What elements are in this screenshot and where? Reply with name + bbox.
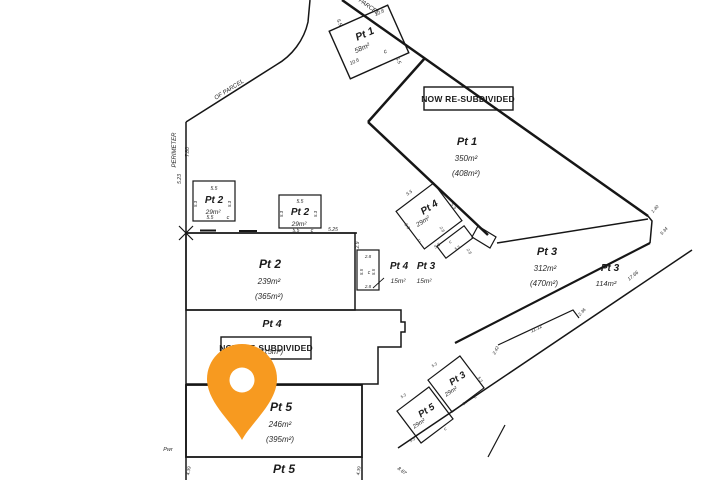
parcel-pt1-58-label: Pt 1 bbox=[354, 25, 377, 44]
parcel-pt3-312-area: 312m² bbox=[534, 264, 557, 273]
dim-7-80: 7.80 bbox=[185, 147, 191, 157]
parcel-pt5-bottom-label: Pt 5 bbox=[273, 462, 295, 476]
dim-4-39: 4.39 bbox=[185, 466, 192, 476]
dim-1-40: 1.40 bbox=[650, 204, 660, 214]
dim-17-66: 17.66 bbox=[627, 270, 641, 283]
dim-5-3: 5.3 bbox=[193, 200, 198, 207]
corner-jog-outline bbox=[472, 226, 496, 248]
parcel-pt2-29a-label: Pt 2 bbox=[205, 195, 224, 206]
dim-2-8: 2.8 bbox=[364, 254, 372, 259]
dim-5-5: 5.5 bbox=[394, 56, 402, 65]
pt1-58-outline bbox=[329, 5, 409, 79]
pin-hole bbox=[230, 368, 255, 393]
c-mark: c bbox=[227, 215, 230, 221]
c-mark: c bbox=[448, 239, 453, 245]
c-mark: c bbox=[443, 426, 448, 432]
parcel-pt2-29b-area: 29m² bbox=[291, 221, 308, 228]
parcel-pt4-29-area: 29m² bbox=[414, 214, 432, 229]
parcel-pt5-main-label: Pt 5 bbox=[270, 400, 292, 414]
dim-5-5: 5.5 bbox=[293, 228, 300, 234]
dim-5-25: 5.25 bbox=[328, 227, 338, 233]
dim-2-8: 2.8 bbox=[438, 225, 446, 234]
parcel-pt1-main-label: Pt 1 bbox=[457, 136, 477, 148]
dim-2-9: 2.9 bbox=[355, 241, 361, 249]
dim-5-3: 5.3 bbox=[279, 210, 284, 217]
perimeter-text: PERIMETER bbox=[172, 132, 178, 168]
parcel-pt3-114-label: Pt 3 bbox=[601, 263, 620, 274]
parcel-pt5-29-label: Pt 5 bbox=[416, 401, 437, 420]
c-mark: c bbox=[417, 238, 423, 245]
parcel-pt3-114-area: 114m² bbox=[596, 279, 617, 288]
parcel-pt3-29-area: 29m² bbox=[443, 385, 459, 399]
dim-8-87: 8.87 bbox=[396, 466, 408, 477]
parcel-pt3-15-label: Pt 3 bbox=[417, 261, 436, 272]
right-parcel-lines bbox=[329, 0, 692, 457]
dim-5-5: 5.5 bbox=[433, 242, 441, 250]
parcel-pt3-312-label: Pt 3 bbox=[537, 246, 557, 258]
parcel-pt2-main-area2: (365m²) bbox=[255, 292, 283, 301]
parcel-pt3-15-area: 15m² bbox=[417, 278, 433, 285]
dim-5-5: 5.5 bbox=[371, 268, 376, 275]
location-pin-icon[interactable] bbox=[207, 344, 277, 440]
parcel-pt4-15-area: 15m² bbox=[391, 278, 407, 285]
perimeter-text-of-parcel: OF PARCEL bbox=[214, 79, 246, 102]
dim-5-5: 5.5 bbox=[453, 244, 461, 252]
dim-5-3: 5.3 bbox=[399, 392, 407, 400]
pwr-text: Pwr bbox=[163, 447, 174, 453]
resubdivided-box-top-label: NOW RE-SUBDIVIDED bbox=[421, 94, 515, 104]
strip-endcap-line bbox=[488, 425, 505, 457]
dim-5-3: 5.3 bbox=[313, 210, 318, 217]
dim-10-6: 10.6 bbox=[349, 57, 361, 67]
dim-2-8: 2.8 bbox=[465, 247, 473, 256]
pt3-312-se-edge bbox=[455, 243, 650, 343]
east-corner-jog bbox=[648, 216, 652, 243]
dim-5-3: 5.3 bbox=[477, 375, 485, 383]
dim-5-3: 5.3 bbox=[227, 200, 232, 207]
dim-5-23: 5.23 bbox=[177, 174, 183, 184]
dim-2-8: 2.8 bbox=[364, 284, 372, 289]
parcel-pt5-main-area: 246m² bbox=[268, 420, 292, 429]
ne-boundary-line bbox=[342, 0, 648, 216]
parcel-pt2-main-label: Pt 2 bbox=[259, 257, 281, 271]
parcel-pt1-58-c-mark: c bbox=[383, 49, 388, 56]
dim-4-39: 4.39 bbox=[355, 466, 362, 476]
dim-5-5: 5.5 bbox=[359, 268, 364, 275]
dim-2-42: 2.42 bbox=[491, 345, 500, 356]
parcel-pt1-58-area: 58m² bbox=[354, 42, 372, 55]
parcel-pt2-main-area: 239m² bbox=[257, 277, 281, 286]
parcel-pt3-312-area2: (470m²) bbox=[530, 279, 558, 288]
parcel-pt1-main-area: 350m² bbox=[455, 154, 478, 163]
pt1-pt3-divider bbox=[497, 219, 648, 243]
dim-5-34: 5.34 bbox=[659, 226, 669, 236]
parcel-pt1-main-area2: (408m²) bbox=[452, 169, 480, 178]
survey-plan-canvas: Pt 158m²c5.510.810.65.5PARCELOF PARCELPE… bbox=[0, 0, 712, 480]
c-mark: c bbox=[311, 228, 314, 234]
parcel-pt2-29b-label: Pt 2 bbox=[291, 207, 310, 218]
parcel-pt5-main-area2: (395m²) bbox=[266, 435, 294, 444]
dim-5-5: 5.5 bbox=[207, 215, 214, 221]
dim-5-5: 5.5 bbox=[211, 186, 218, 192]
parcel-pt3-29-label: Pt 3 bbox=[447, 369, 468, 388]
dim-5-5: 5.5 bbox=[297, 199, 304, 205]
dim-5-3: 5.3 bbox=[430, 361, 438, 369]
dim-5-5: 5.5 bbox=[405, 189, 413, 197]
parcel-pt4-main-label: Pt 4 bbox=[262, 318, 281, 330]
parcel-pt4-15-label: Pt 4 bbox=[390, 261, 409, 272]
perimeter-curve-line bbox=[186, 0, 310, 122]
boundary-ticks bbox=[200, 231, 257, 232]
parcel-pt4-29-label: Pt 4 bbox=[419, 198, 441, 217]
